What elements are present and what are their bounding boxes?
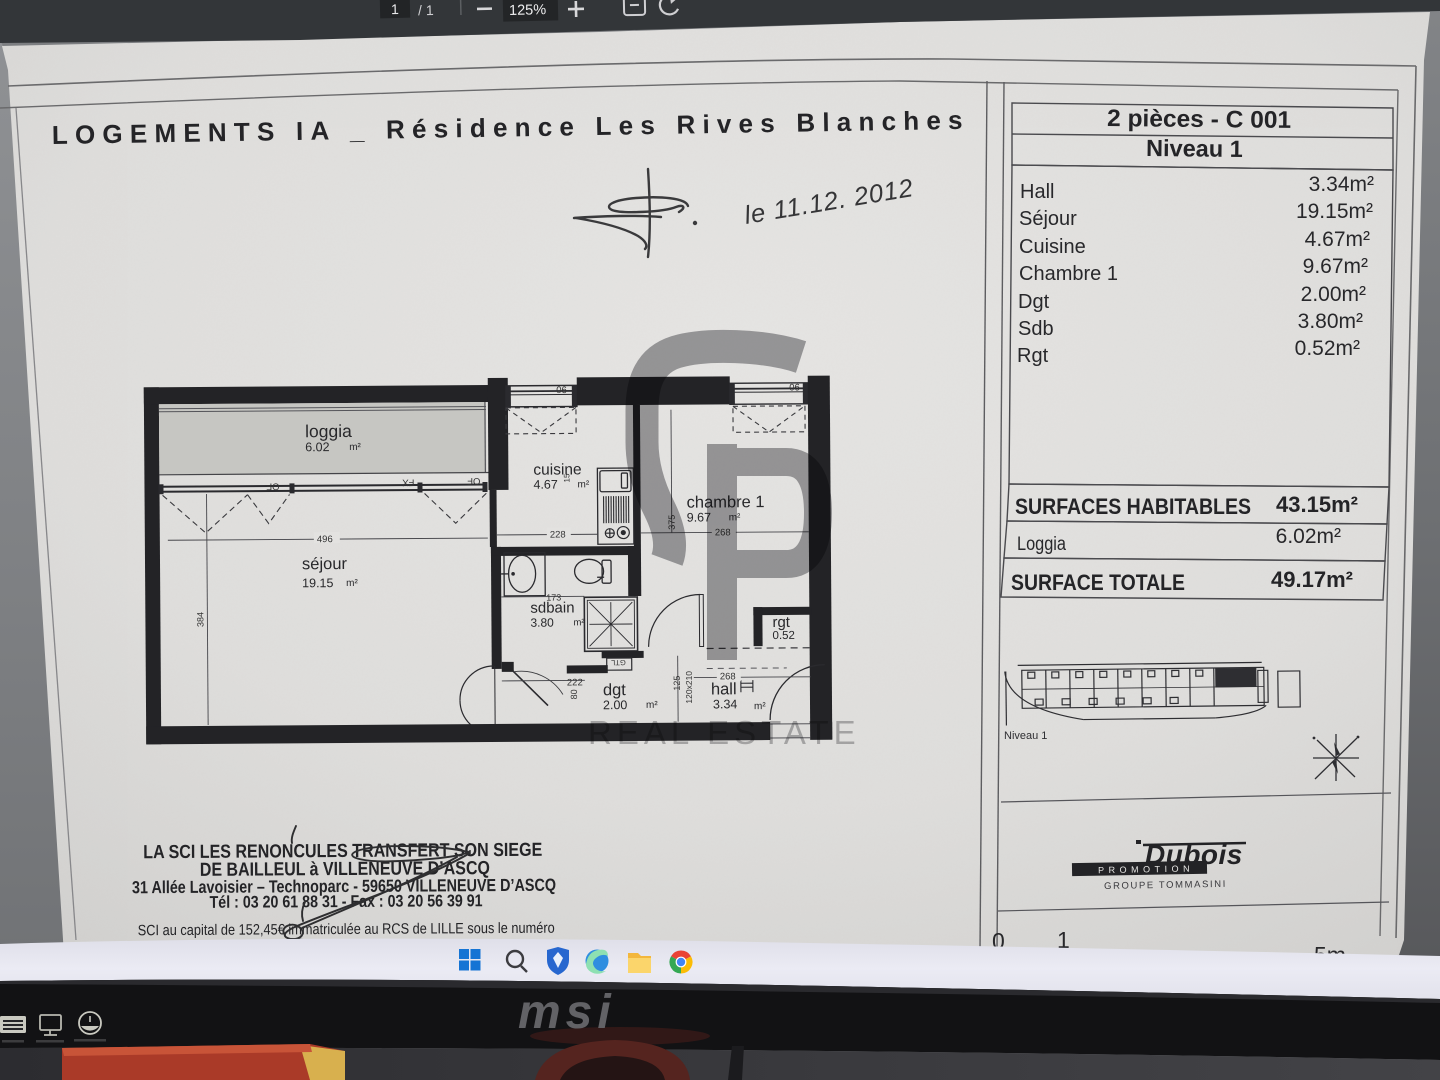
svg-text:m²: m²: [346, 578, 358, 589]
svg-text:228: 228: [550, 529, 566, 540]
svg-text:dgt: dgt: [603, 681, 626, 699]
svg-text:OF: OF: [467, 475, 480, 486]
svg-text:SURFACE TOTALE: SURFACE TOTALE: [1011, 570, 1185, 595]
svg-text:m²: m²: [577, 479, 589, 490]
svg-text:222: 222: [567, 677, 583, 688]
svg-text:4.67: 4.67: [533, 478, 557, 492]
svg-text:90: 90: [556, 383, 567, 394]
svg-text:2.00: 2.00: [603, 698, 627, 712]
svg-text:2 pièces - C 001: 2 pièces - C 001: [1107, 105, 1291, 134]
svg-text:125%: 125%: [509, 2, 547, 19]
svg-text:Rgt: Rgt: [1017, 345, 1049, 367]
svg-text:hall: hall: [711, 680, 737, 698]
svg-text:43.15m²: 43.15m²: [1276, 492, 1358, 517]
svg-text:0.52: 0.52: [772, 630, 794, 642]
svg-text:OF: OF: [266, 480, 279, 491]
svg-text:Cuisine: Cuisine: [1019, 236, 1086, 258]
svg-text:2.00m²: 2.00m²: [1301, 283, 1366, 306]
svg-text:4.67m²: 4.67m²: [1305, 228, 1370, 251]
svg-text:SCI au capital de 152,45€ imma: SCI au capital de 152,45€ immatriculée a…: [138, 920, 555, 940]
svg-text:3.80: 3.80: [530, 616, 554, 630]
svg-text:Chambre 1: Chambre 1: [1019, 263, 1118, 285]
svg-text:268: 268: [720, 671, 736, 682]
svg-text:3.34: 3.34: [713, 697, 737, 711]
svg-text:15: 15: [562, 473, 571, 483]
svg-text:496: 496: [317, 534, 333, 545]
svg-text:3.34m²: 3.34m²: [1309, 173, 1374, 196]
svg-text:Niveau 1: Niveau 1: [1146, 135, 1243, 162]
svg-text:19.15: 19.15: [302, 576, 333, 590]
svg-text:9.67m²: 9.67m²: [1303, 255, 1368, 278]
svg-text:Dgt: Dgt: [1018, 291, 1050, 313]
svg-text:cuisine: cuisine: [533, 461, 581, 478]
svg-text:loggia: loggia: [305, 421, 352, 441]
svg-text:Niveau 1: Niveau 1: [1004, 730, 1047, 742]
svg-text:SURFACES HABITABLES: SURFACES HABITABLES: [1015, 494, 1251, 519]
svg-text:REAL ESTATE: REAL ESTATE: [588, 714, 861, 751]
svg-text:PROMOTION: PROMOTION: [1098, 864, 1194, 876]
svg-text:3.80m²: 3.80m²: [1298, 310, 1363, 333]
svg-text:m²: m²: [646, 700, 658, 711]
svg-text:m²: m²: [754, 701, 766, 712]
svg-text:m²: m²: [573, 617, 584, 628]
svg-text:Hall: Hall: [1020, 181, 1054, 203]
svg-text:GTL: GTL: [611, 658, 626, 667]
svg-text:GROUPE TOMMASINI: GROUPE TOMMASINI: [1104, 879, 1227, 892]
svg-text:Sdb: Sdb: [1018, 318, 1054, 340]
svg-text:6.02m²: 6.02m²: [1276, 525, 1341, 548]
svg-text:0.52m²: 0.52m²: [1295, 337, 1360, 360]
svg-text:6.02: 6.02: [305, 440, 329, 454]
svg-text:FX: FX: [402, 477, 415, 488]
svg-text:Loggia: Loggia: [1017, 534, 1066, 555]
svg-text:384: 384: [195, 612, 205, 627]
svg-text:m²: m²: [349, 442, 361, 453]
svg-text:90: 90: [789, 381, 800, 392]
svg-text:19.15m²: 19.15m²: [1296, 200, 1373, 223]
svg-text:rgt: rgt: [772, 614, 790, 631]
svg-text:173: 173: [546, 593, 561, 603]
svg-text:80: 80: [569, 689, 579, 699]
svg-text:1: 1: [391, 1, 399, 17]
svg-text:Séjour: Séjour: [1019, 208, 1077, 230]
svg-text:/ 1: / 1: [418, 2, 434, 18]
svg-text:49.17m²: 49.17m²: [1271, 567, 1353, 592]
svg-text:125: 125: [672, 676, 682, 691]
svg-text:msi: msi: [518, 986, 616, 1039]
svg-text:séjour: séjour: [302, 555, 348, 573]
svg-text:120x210: 120x210: [684, 671, 694, 704]
